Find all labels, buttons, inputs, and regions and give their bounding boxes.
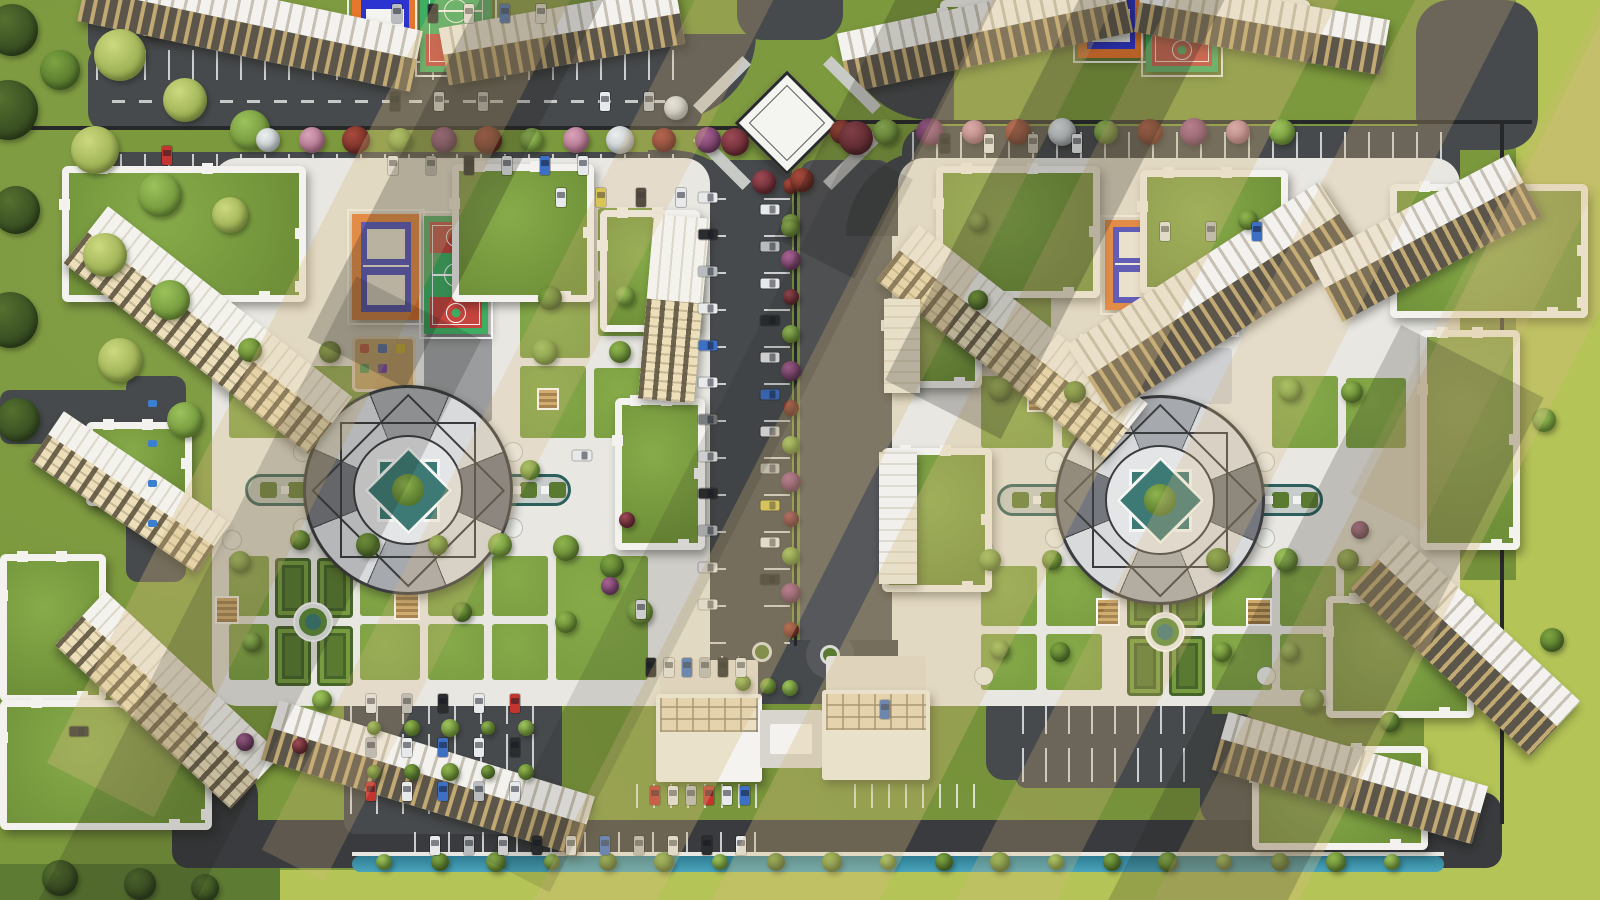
car-windshield	[541, 160, 549, 166]
roof-ridges	[647, 213, 710, 303]
tree	[404, 720, 420, 736]
roof-notch	[202, 163, 213, 174]
roof-notch	[181, 458, 192, 469]
tree	[782, 325, 800, 343]
tree	[752, 170, 776, 194]
tree	[431, 853, 449, 871]
tree	[555, 611, 577, 633]
parked-car	[366, 738, 376, 757]
car-windshield	[737, 840, 745, 846]
utility-bin	[148, 400, 157, 407]
pill-hedge	[549, 482, 566, 498]
parked-car	[1028, 134, 1038, 153]
car-windshield	[770, 317, 776, 325]
parked-car	[556, 188, 566, 207]
parked-car	[880, 700, 890, 719]
turnaround-island	[752, 642, 772, 662]
car-windshield	[701, 662, 709, 668]
masterplan-aerial-render	[0, 0, 1600, 900]
parked-car	[761, 501, 780, 511]
tree	[138, 173, 182, 217]
car-windshield	[645, 96, 653, 102]
car-windshield	[579, 160, 587, 166]
parked-car	[1160, 222, 1170, 241]
gate-connector-roof	[770, 724, 812, 754]
parked-car	[162, 146, 172, 165]
residential-slab-building	[884, 299, 920, 393]
car-windshield	[647, 662, 655, 668]
pill-hedge	[1272, 492, 1289, 508]
parked-car	[761, 427, 780, 437]
tree	[441, 763, 459, 781]
parked-car	[699, 193, 718, 203]
car-windshield	[501, 8, 509, 14]
tree	[71, 126, 119, 174]
entrance-pavilion	[822, 690, 930, 780]
tree	[783, 289, 799, 305]
playground	[352, 336, 416, 392]
pergola	[215, 596, 239, 624]
pill-bench	[1033, 496, 1041, 504]
roof-notch	[59, 199, 70, 210]
tree	[1341, 381, 1363, 403]
car-windshield	[708, 194, 714, 202]
tree	[839, 121, 873, 155]
tree	[292, 738, 308, 754]
car-windshield	[708, 305, 714, 313]
parking-stall-lines	[1022, 748, 1206, 782]
parked-car	[699, 341, 718, 351]
roof-notch	[981, 514, 992, 525]
tree	[1216, 854, 1232, 870]
parked-car	[676, 188, 686, 207]
tree	[428, 535, 448, 555]
tree	[376, 854, 392, 870]
car-windshield	[511, 742, 519, 748]
roof-notch	[142, 419, 153, 430]
parked-car	[700, 658, 710, 677]
car-windshield	[537, 8, 545, 14]
tree	[1274, 548, 1298, 572]
tree	[782, 547, 800, 565]
pergola	[1246, 598, 1272, 626]
key-dot-green	[452, 308, 461, 317]
tree	[783, 622, 799, 638]
car-windshield	[705, 790, 713, 796]
parked-car	[699, 600, 718, 610]
parked-car	[761, 575, 780, 585]
car-windshield	[708, 379, 714, 387]
car-windshield	[389, 160, 397, 166]
tree	[1042, 550, 1062, 570]
tree	[488, 533, 512, 557]
parked-car	[392, 4, 402, 23]
car-windshield	[403, 786, 411, 792]
car-windshield	[582, 452, 588, 460]
play-equipment	[378, 344, 387, 353]
tree	[40, 50, 80, 90]
tree	[481, 721, 495, 735]
parked-car	[573, 451, 592, 461]
tree	[238, 338, 262, 362]
parked-car	[644, 92, 654, 111]
tree	[518, 720, 534, 736]
car-windshield	[708, 601, 714, 609]
tree	[790, 168, 814, 192]
car-windshield	[403, 698, 411, 704]
tree	[760, 678, 776, 694]
car-windshield	[637, 192, 645, 198]
utility-bin	[148, 440, 157, 447]
gate-annex-east	[826, 656, 926, 694]
tree	[735, 675, 751, 691]
parked-car	[761, 242, 780, 252]
parked-car	[500, 4, 510, 23]
roof-notch	[295, 281, 306, 292]
tree	[652, 128, 676, 152]
car-windshield	[435, 96, 443, 102]
parked-car	[596, 188, 606, 207]
parked-car	[464, 836, 474, 855]
car-windshield	[637, 604, 645, 610]
tree	[783, 511, 799, 527]
pill-bench	[513, 486, 521, 494]
tree	[600, 554, 624, 578]
parked-car	[699, 378, 718, 388]
car-windshield	[427, 160, 435, 166]
car-windshield	[770, 391, 776, 399]
parked-car	[426, 156, 436, 175]
parked-car	[736, 836, 746, 855]
roof-notch	[694, 468, 705, 479]
roof-notch	[1089, 226, 1100, 237]
tree	[1269, 119, 1295, 145]
parked-car	[699, 267, 718, 277]
tree	[695, 127, 721, 153]
play-equipment	[360, 364, 369, 373]
tree	[873, 119, 899, 145]
car-windshield	[708, 268, 714, 276]
parked-car	[474, 738, 484, 757]
tree	[1380, 712, 1400, 732]
tree	[1206, 548, 1230, 572]
tree	[312, 690, 332, 710]
car-windshield	[703, 840, 711, 846]
roof-notch	[1063, 287, 1074, 298]
pond-island-tree	[1144, 484, 1176, 516]
path-node	[223, 531, 241, 549]
parked-car	[704, 786, 714, 805]
tree	[962, 120, 986, 144]
car-windshield	[770, 502, 776, 510]
skylight-grid	[826, 694, 926, 730]
tree	[486, 852, 506, 872]
volleyball-court-blue	[361, 222, 411, 311]
pill-bench	[1293, 496, 1301, 504]
parked-car	[502, 156, 512, 175]
parked-car	[474, 782, 484, 801]
car-windshield	[708, 564, 714, 572]
roof-notch	[56, 551, 67, 562]
roof-notch	[0, 732, 8, 743]
tree	[782, 680, 798, 696]
roof-notch	[1027, 163, 1038, 174]
tree	[782, 436, 800, 454]
car-windshield	[985, 138, 993, 144]
parked-car	[664, 658, 674, 677]
tree	[236, 733, 254, 751]
tree	[1180, 118, 1208, 146]
tree	[0, 4, 38, 56]
car-windshield	[723, 790, 731, 796]
tree	[1094, 120, 1118, 144]
roof-notch	[961, 163, 972, 174]
court-midline	[363, 265, 409, 267]
parked-car	[761, 353, 780, 363]
parked-car	[464, 4, 474, 23]
tree	[988, 378, 1012, 402]
tree	[299, 127, 325, 153]
roof-notch	[1439, 707, 1450, 718]
car-windshield	[79, 728, 85, 736]
play-equipment	[360, 344, 369, 353]
car-windshield	[367, 698, 375, 704]
roof-ridges	[879, 452, 917, 584]
tree	[518, 764, 534, 780]
tree	[544, 854, 560, 870]
tree	[712, 854, 728, 870]
parked-car	[634, 836, 644, 855]
roof-notch	[31, 697, 42, 708]
tree	[538, 286, 562, 310]
car-windshield	[511, 786, 519, 792]
tree	[599, 853, 617, 871]
parked-car	[402, 738, 412, 757]
tree	[1384, 854, 1400, 870]
roof-notch	[1491, 539, 1502, 550]
car-windshield	[567, 840, 575, 846]
parked-car	[390, 92, 400, 111]
tree	[356, 533, 380, 557]
pergola	[1096, 598, 1120, 626]
parked-car	[532, 836, 542, 855]
path-node	[975, 667, 993, 685]
parked-car	[434, 92, 444, 111]
tree	[452, 602, 472, 622]
parked-car	[438, 782, 448, 801]
parked-car	[699, 563, 718, 573]
tree	[1158, 852, 1178, 872]
parked-car	[366, 782, 376, 801]
roof-notch	[1390, 839, 1401, 850]
tree	[83, 233, 127, 277]
tree	[601, 577, 619, 595]
roof-notch	[1509, 527, 1520, 538]
car-windshield	[557, 192, 565, 198]
car-windshield	[1207, 226, 1215, 232]
tree	[532, 339, 558, 365]
tree	[979, 549, 1001, 571]
tree	[0, 80, 38, 140]
car-windshield	[687, 790, 695, 796]
tree	[212, 197, 248, 233]
car-windshield	[708, 342, 714, 350]
car-windshield	[475, 742, 483, 748]
roof-notch	[103, 419, 114, 430]
parked-car	[761, 279, 780, 289]
tree	[990, 852, 1010, 872]
parked-car	[761, 538, 780, 548]
parked-car	[650, 786, 660, 805]
tree	[781, 472, 801, 492]
car-windshield	[431, 840, 439, 846]
tree	[619, 512, 635, 528]
parked-car	[70, 727, 89, 737]
parked-car	[510, 738, 520, 757]
roof-notch	[954, 377, 965, 388]
roof-notch	[169, 819, 180, 830]
tree	[767, 853, 785, 871]
tree	[1271, 853, 1289, 871]
parked-car	[540, 156, 550, 175]
tree	[721, 128, 749, 156]
car-windshield	[503, 160, 511, 166]
tree	[553, 535, 579, 561]
car-windshield	[665, 662, 673, 668]
car-windshield	[533, 840, 541, 846]
parked-car	[699, 230, 718, 240]
parked-car	[510, 782, 520, 801]
car-windshield	[669, 790, 677, 796]
tree	[783, 400, 799, 416]
parked-car	[668, 786, 678, 805]
car-windshield	[669, 840, 677, 846]
ne-loop-road	[1416, 0, 1538, 150]
car-windshield	[163, 150, 171, 156]
tree	[367, 721, 381, 735]
car-windshield	[1029, 138, 1037, 144]
pill-hedge	[520, 482, 537, 498]
tree	[1300, 688, 1324, 712]
tree	[474, 126, 502, 154]
car-windshield	[429, 8, 437, 14]
roof-notch	[0, 590, 8, 601]
roof-notch	[1547, 307, 1558, 318]
parked-car	[668, 836, 678, 855]
tree	[1137, 119, 1163, 145]
parked-car	[578, 156, 588, 175]
tree	[1212, 642, 1232, 662]
tree	[1048, 854, 1064, 870]
car-windshield	[1161, 226, 1169, 232]
parked-car	[402, 782, 412, 801]
roof-notch	[1577, 297, 1588, 308]
tree	[822, 852, 842, 872]
parked-car	[430, 836, 440, 855]
fountain-water	[305, 614, 321, 630]
parked-car	[478, 92, 488, 111]
car-windshield	[708, 527, 714, 535]
roof-notch	[1509, 434, 1520, 445]
tree	[191, 874, 219, 900]
tree	[388, 128, 412, 152]
roof-notch	[201, 809, 212, 820]
key-dot-green	[1178, 46, 1187, 55]
lawn-cell	[492, 556, 548, 616]
play-equipment	[396, 344, 405, 353]
car-windshield	[1253, 226, 1261, 232]
parked-car	[510, 694, 520, 713]
car-windshield	[367, 742, 375, 748]
tree	[1050, 642, 1070, 662]
parked-car	[474, 694, 484, 713]
roof-notch	[259, 291, 270, 302]
outer-lawn-bottom	[276, 870, 1600, 900]
pill-hedge	[260, 482, 277, 498]
fountain-water	[1157, 624, 1173, 640]
roof-notch	[678, 539, 689, 550]
tree	[290, 530, 310, 550]
parked-car	[438, 694, 448, 713]
parked-car	[646, 658, 656, 677]
roof-notch	[617, 207, 628, 218]
tree	[1064, 381, 1086, 403]
tree	[1540, 628, 1564, 652]
tree	[880, 854, 896, 870]
utility-bin	[148, 520, 157, 527]
car-windshield	[770, 243, 776, 251]
tree	[229, 551, 251, 573]
parked-car	[636, 600, 646, 619]
lawn-cell	[492, 624, 548, 680]
car-windshield	[439, 698, 447, 704]
roof-notch	[940, 445, 951, 456]
car-windshield	[770, 354, 776, 362]
roof-notch	[962, 581, 973, 592]
car-windshield	[601, 96, 609, 102]
tree	[404, 764, 420, 780]
parked-car	[761, 464, 780, 474]
parked-car	[984, 134, 994, 153]
parked-car	[699, 526, 718, 536]
parked-car	[402, 694, 412, 713]
green-roof-building	[1420, 330, 1520, 550]
parked-car	[940, 134, 950, 153]
tree	[520, 128, 544, 152]
parked-car	[718, 658, 728, 677]
car-windshield	[770, 206, 776, 214]
pill-bench	[1265, 496, 1273, 504]
tree	[163, 78, 207, 122]
tree	[1278, 378, 1302, 402]
tree	[319, 341, 341, 363]
tree	[781, 250, 801, 270]
tree	[150, 280, 190, 320]
tree	[0, 186, 40, 234]
car-windshield	[770, 539, 776, 547]
parked-car	[536, 4, 546, 23]
tree	[1280, 642, 1300, 662]
tree	[0, 292, 38, 348]
car-windshield	[439, 742, 447, 748]
car-windshield	[770, 428, 776, 436]
lawn-cell	[428, 624, 484, 680]
roof-notch	[612, 435, 623, 446]
roof-notch	[17, 551, 28, 562]
parked-car	[699, 452, 718, 462]
parked-car	[428, 4, 438, 23]
pergola	[537, 388, 559, 410]
